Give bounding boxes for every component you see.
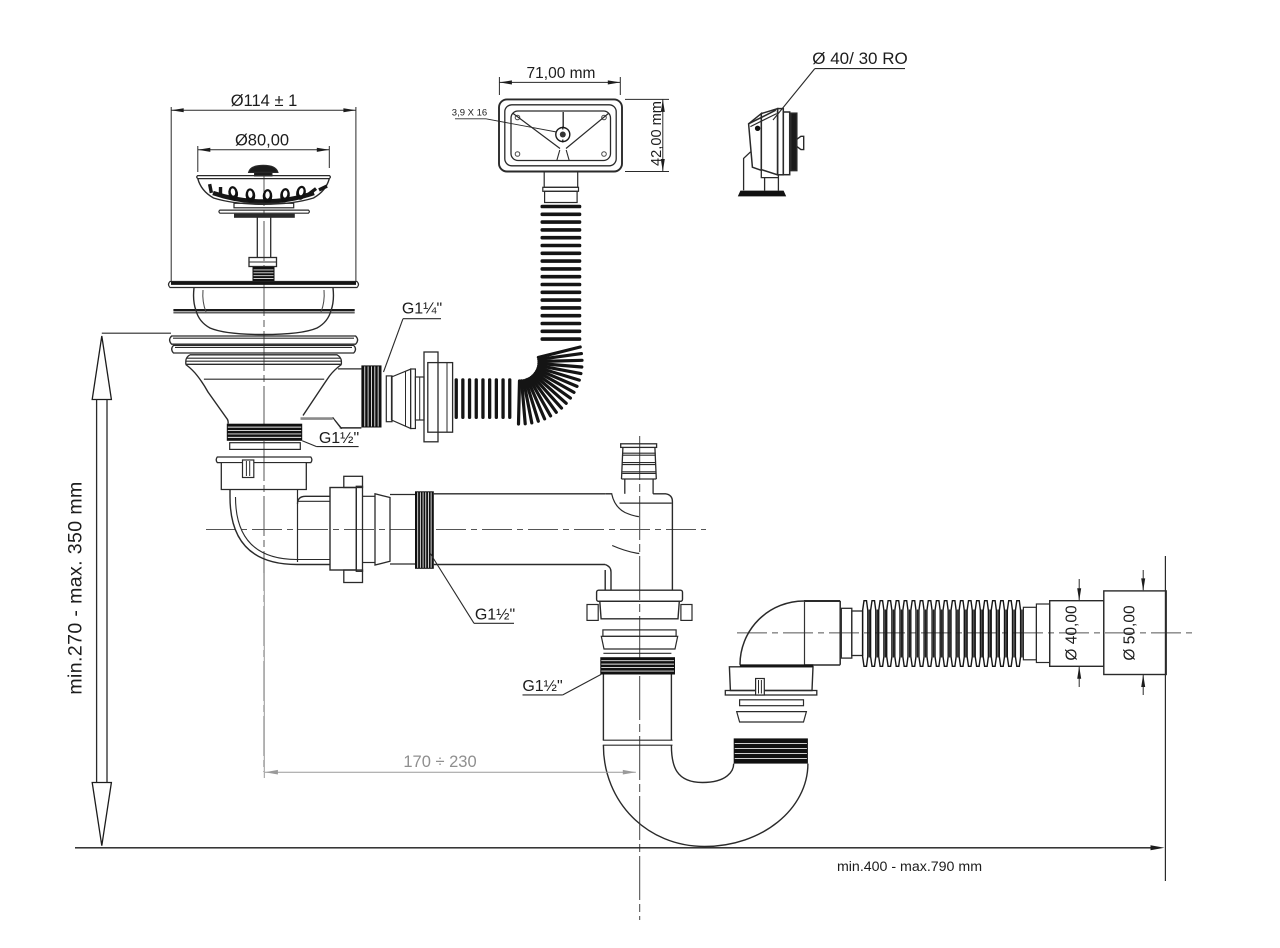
svg-text:G1½": G1½" (522, 678, 562, 695)
svg-text:G1¼": G1¼" (402, 301, 442, 318)
svg-text:Ø114 ± 1: Ø114 ± 1 (231, 92, 298, 110)
svg-text:Ø 40,00: Ø 40,00 (1064, 605, 1081, 661)
svg-text:Ø 40/ 30 RO: Ø 40/ 30 RO (812, 49, 907, 68)
svg-text:G1½": G1½" (475, 607, 515, 624)
svg-text:71,00 mm: 71,00 mm (527, 65, 596, 82)
svg-text:42,00 mm: 42,00 mm (649, 101, 665, 166)
svg-text:Ø 50,00: Ø 50,00 (1122, 605, 1139, 661)
svg-text:G1½": G1½" (319, 430, 359, 447)
svg-text:min.400 - max.790 mm: min.400 - max.790 mm (837, 859, 982, 875)
svg-text:min.270 - max. 350 mm: min.270 - max. 350 mm (65, 481, 87, 694)
svg-text:3,9 X 16: 3,9 X 16 (452, 108, 487, 119)
svg-text:170 ÷ 230: 170 ÷ 230 (403, 753, 476, 771)
svg-text:Ø80,00: Ø80,00 (235, 132, 289, 150)
